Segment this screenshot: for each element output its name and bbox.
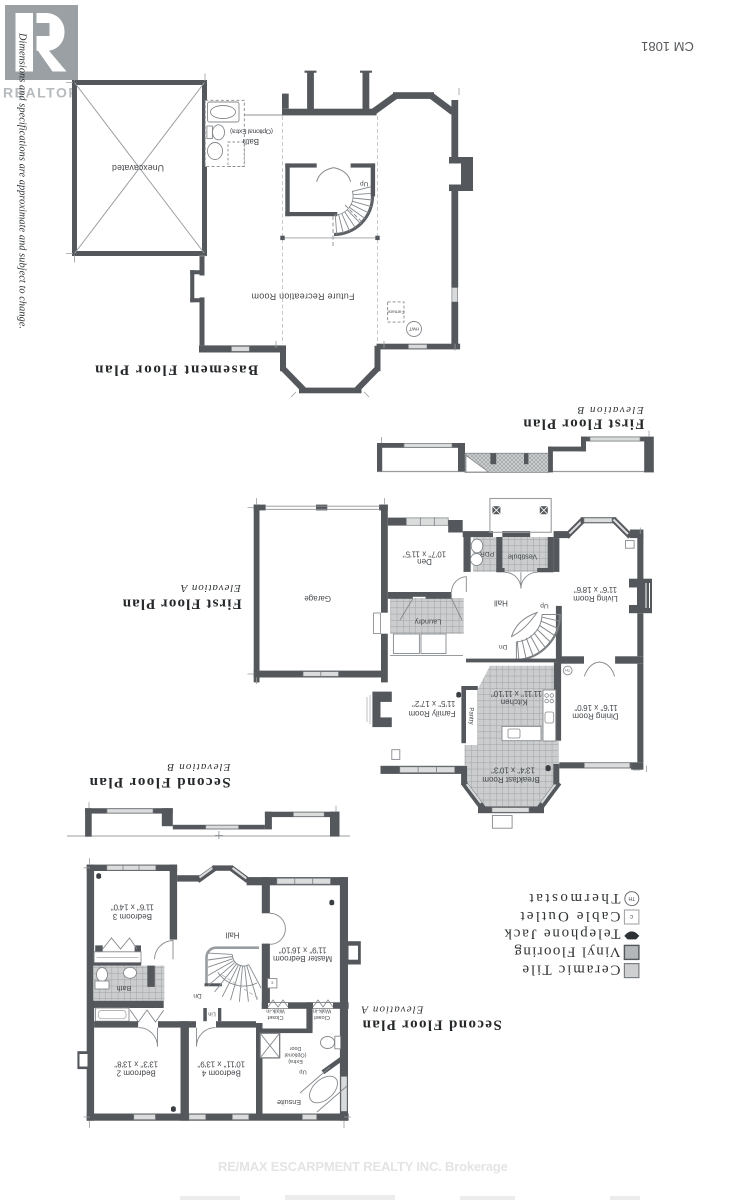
- svg-text:Dimensions and specifications: Dimensions and specifications are approx…: [17, 32, 28, 329]
- svg-text:11'6" x 16'0": 11'6" x 16'0": [574, 703, 617, 712]
- svg-text:10'11" x 13'9": 10'11" x 13'9": [197, 1060, 245, 1069]
- svg-text:Dn: Dn: [193, 992, 202, 999]
- svg-text:Elevation A: Elevation A: [181, 582, 242, 594]
- svg-text:TH: TH: [628, 895, 635, 901]
- svg-text:PDR: PDR: [480, 550, 494, 557]
- svg-text:Thermostat: Thermostat: [529, 890, 621, 906]
- svg-text:Furnace: Furnace: [387, 309, 404, 314]
- svg-text:Pantry: Pantry: [467, 707, 473, 724]
- svg-text:(Optional Extra): (Optional Extra): [230, 128, 273, 135]
- svg-text:Bedroom 2: Bedroom 2: [116, 1068, 156, 1077]
- svg-text:Bath: Bath: [117, 984, 132, 993]
- svg-text:Dining Room: Dining Room: [572, 711, 619, 720]
- svg-text:Living Room: Living Room: [573, 594, 618, 603]
- svg-text:First Floor Plan: First Floor Plan: [523, 416, 645, 432]
- svg-text:11'6" x 14'0": 11'6" x 14'0": [111, 902, 154, 911]
- svg-text:Bedroom 4: Bedroom 4: [201, 1068, 241, 1077]
- svg-text:11'5" x 17'2": 11'5" x 17'2": [412, 699, 455, 708]
- svg-text:REALTOR: REALTOR: [3, 85, 79, 101]
- svg-text:11'11" x 11'10": 11'11" x 11'10": [491, 689, 542, 698]
- svg-text:Up: Up: [299, 1069, 306, 1075]
- svg-text:Closet: Closet: [314, 1014, 330, 1020]
- svg-text:Elevation A: Elevation A: [361, 1003, 424, 1015]
- svg-text:First Floor Plan: First Floor Plan: [122, 595, 242, 611]
- svg-text:Garage: Garage: [304, 594, 331, 603]
- svg-text:Second Floor Plan: Second Floor Plan: [89, 774, 231, 790]
- svg-text:Walk-in: Walk-in: [266, 1008, 284, 1014]
- svg-text:CM 1081: CM 1081: [641, 39, 694, 54]
- svg-text:HWT: HWT: [409, 326, 420, 331]
- svg-text:RE/MAX ESCARPMENT REALTY INC.: RE/MAX ESCARPMENT REALTY INC. Brokerage: [218, 1159, 508, 1174]
- svg-text:13'3" x 13'8": 13'3" x 13'8": [114, 1060, 158, 1069]
- svg-text:Elevation B: Elevation B: [577, 404, 644, 416]
- svg-text:Closet: Closet: [267, 1014, 283, 1020]
- svg-text:Family Room: Family Room: [408, 709, 455, 718]
- svg-text:Ensuite: Ensuite: [277, 1098, 301, 1107]
- svg-text:Laundry: Laundry: [414, 617, 441, 626]
- svg-text:Unexcavated: Unexcavated: [112, 163, 164, 173]
- svg-text:Basement Floor Plan: Basement Floor Plan: [95, 361, 259, 377]
- svg-text:TH: TH: [565, 668, 570, 672]
- svg-text:Up: Up: [540, 602, 549, 609]
- svg-text:Den: Den: [417, 557, 432, 566]
- svg-text:11'9" x 16'10": 11'9" x 16'10": [279, 945, 327, 954]
- svg-text:(Optional: (Optional: [285, 1052, 307, 1058]
- svg-text:Hall: Hall: [225, 931, 239, 940]
- svg-text:Walk-in: Walk-in: [313, 1008, 331, 1014]
- svg-text:Hall: Hall: [494, 599, 508, 608]
- svg-text:Second Floor Plan: Second Floor Plan: [362, 1017, 502, 1033]
- svg-text:Extra): Extra): [288, 1058, 303, 1064]
- svg-text:Up: Up: [360, 180, 369, 187]
- svg-text:c: c: [630, 913, 633, 919]
- svg-text:Elevation B: Elevation B: [167, 761, 231, 773]
- svg-text:Bath: Bath: [243, 137, 259, 146]
- svg-text:11'6" x 18'6": 11'6" x 18'6": [574, 585, 617, 594]
- svg-text:Dn: Dn: [499, 643, 508, 650]
- svg-text:Lin: Lin: [208, 1011, 215, 1017]
- svg-text:Vestibule: Vestibule: [508, 553, 537, 562]
- svg-text:Breakfast Room: Breakfast Room: [482, 775, 540, 784]
- svg-text:Bedroom 3: Bedroom 3: [112, 912, 152, 921]
- svg-text:Master Bedroom: Master Bedroom: [273, 954, 332, 963]
- svg-text:Future Recreation Room: Future Recreation Room: [252, 292, 355, 302]
- svg-text:13'4" x 10'3": 13'4" x 10'3": [491, 765, 535, 774]
- svg-text:Kitchen: Kitchen: [501, 698, 528, 707]
- svg-text:Vinyl Flooring: Vinyl Flooring: [514, 943, 621, 959]
- svg-text:Door: Door: [289, 1045, 301, 1051]
